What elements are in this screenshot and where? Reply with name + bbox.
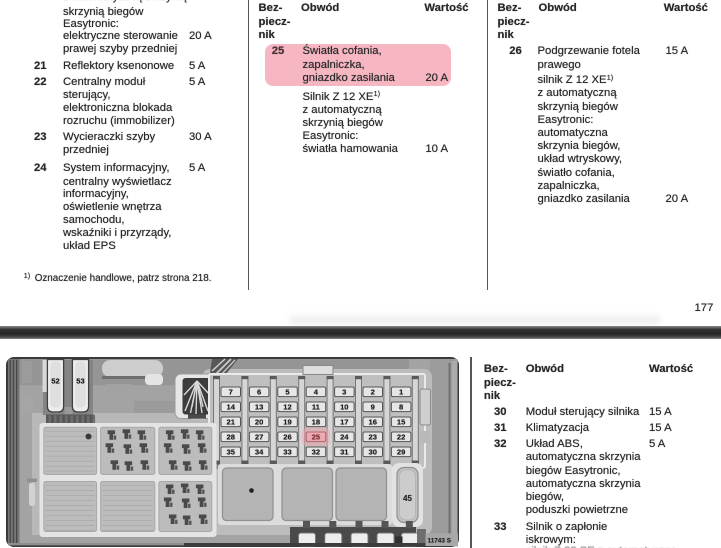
svg-text:13: 13 bbox=[255, 403, 263, 412]
svg-text:6: 6 bbox=[257, 388, 261, 397]
svg-text:15: 15 bbox=[397, 418, 406, 427]
svg-text:25: 25 bbox=[312, 433, 321, 442]
svg-text:9: 9 bbox=[371, 403, 375, 412]
svg-text:17: 17 bbox=[340, 418, 348, 427]
svg-text:35: 35 bbox=[226, 448, 235, 457]
svg-text:19: 19 bbox=[283, 418, 291, 427]
svg-text:20: 20 bbox=[255, 418, 263, 427]
svg-text:45: 45 bbox=[403, 494, 412, 503]
svg-text:2: 2 bbox=[371, 388, 375, 397]
svg-text:27: 27 bbox=[255, 433, 263, 442]
svg-text:16: 16 bbox=[368, 418, 376, 427]
svg-text:31: 31 bbox=[340, 448, 349, 457]
svg-text:23: 23 bbox=[368, 433, 376, 442]
svg-text:32: 32 bbox=[312, 448, 320, 457]
svg-text:30: 30 bbox=[368, 448, 376, 457]
svg-text:11743 S: 11743 S bbox=[428, 538, 452, 545]
svg-text:14: 14 bbox=[226, 403, 235, 412]
svg-text:8: 8 bbox=[399, 403, 403, 412]
svg-text:21: 21 bbox=[226, 418, 235, 427]
svg-text:3: 3 bbox=[342, 388, 346, 397]
svg-text:24: 24 bbox=[340, 433, 349, 442]
svg-text:18: 18 bbox=[312, 418, 320, 427]
svg-text:33: 33 bbox=[283, 448, 291, 457]
svg-text:53: 53 bbox=[76, 377, 84, 386]
svg-text:28: 28 bbox=[226, 433, 234, 442]
svg-text:26: 26 bbox=[283, 433, 291, 442]
svg-text:52: 52 bbox=[51, 377, 59, 386]
svg-text:7: 7 bbox=[229, 388, 233, 397]
svg-text:34: 34 bbox=[255, 448, 264, 457]
svg-text:22: 22 bbox=[397, 433, 405, 442]
svg-text:12: 12 bbox=[283, 403, 291, 412]
svg-text:29: 29 bbox=[397, 448, 405, 457]
svg-text:10: 10 bbox=[340, 403, 348, 412]
svg-text:11: 11 bbox=[312, 403, 321, 412]
